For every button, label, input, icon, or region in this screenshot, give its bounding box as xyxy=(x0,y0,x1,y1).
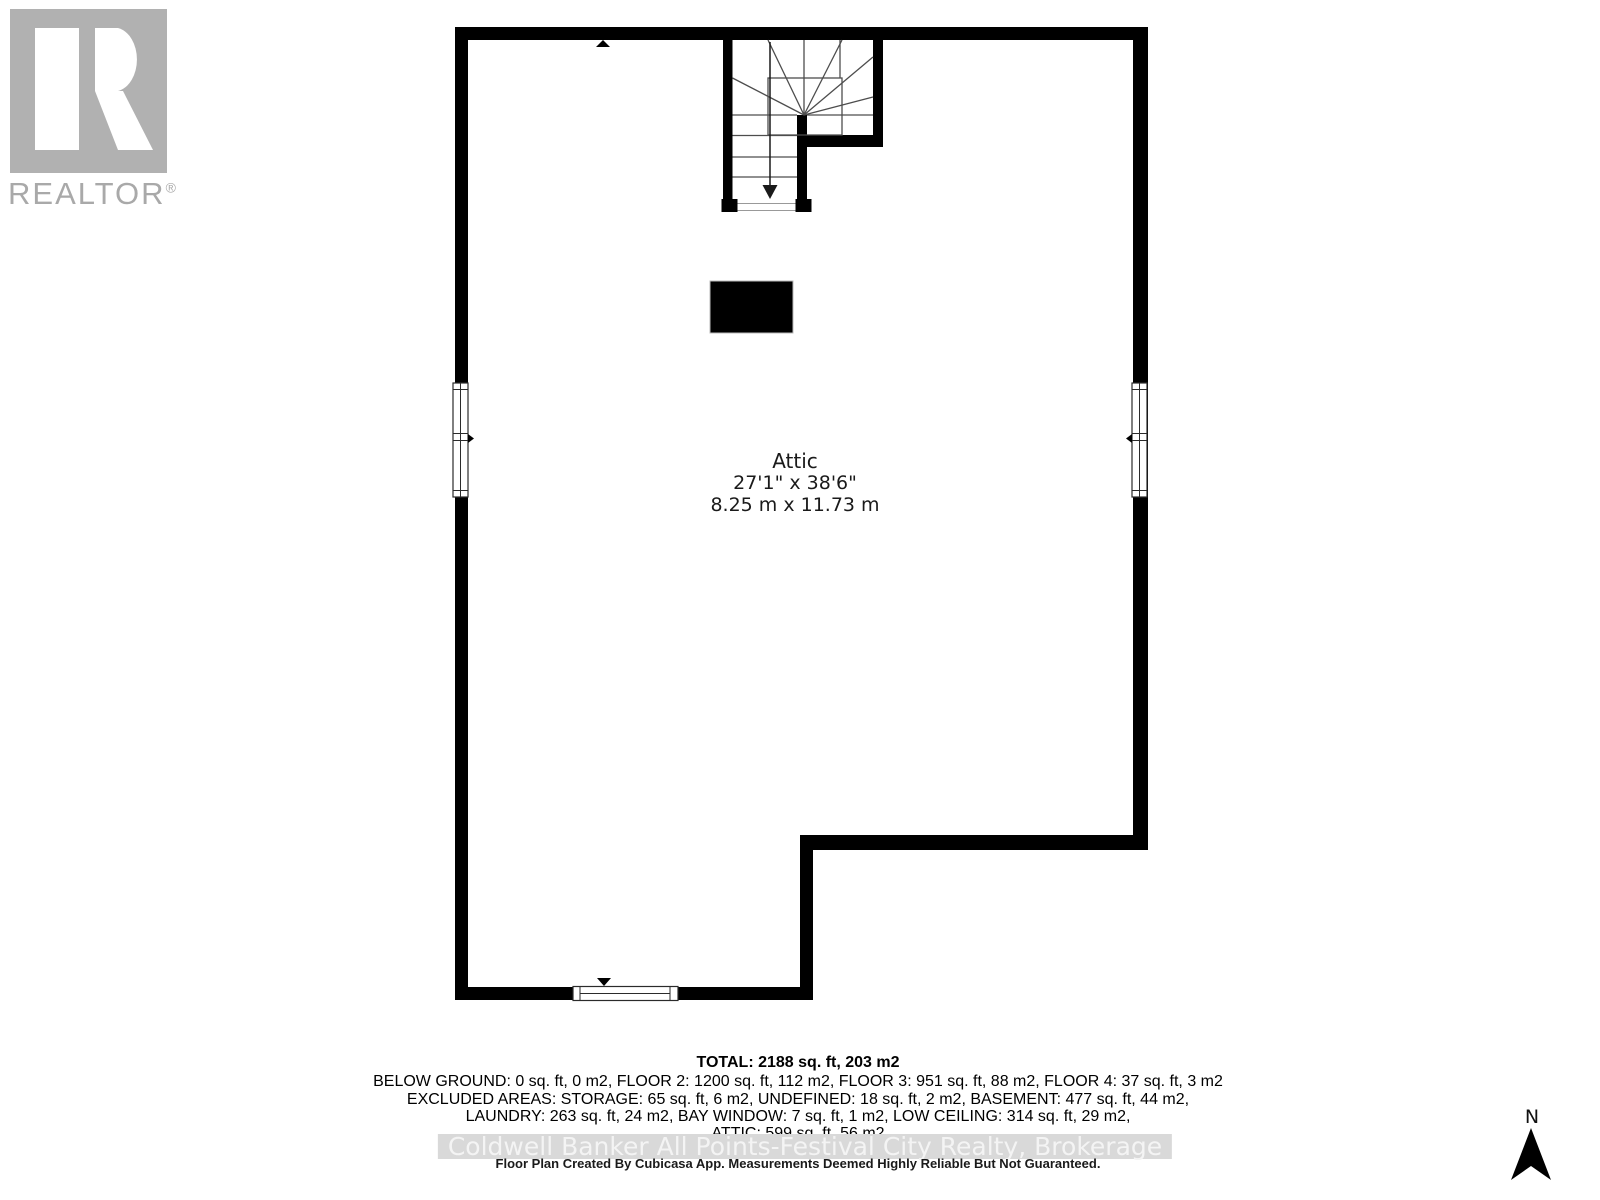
marker-triangle-bottom xyxy=(597,978,611,986)
floor-plan-drawing xyxy=(0,0,1600,1200)
stairs-down-arrow-icon xyxy=(763,42,778,199)
room-label: Attic 27'1" x 38'6" 8.25 m x 11.73 m xyxy=(435,450,1155,516)
total-area-line: TOTAL: 2188 sq. ft, 203 m2 xyxy=(0,1054,1596,1072)
marker-triangle-top xyxy=(596,40,610,47)
disclaimer-text: Floor Plan Created By Cubicasa App. Meas… xyxy=(0,1156,1596,1171)
floor-plan-page: REALTOR® xyxy=(0,0,1600,1200)
stair-threshold xyxy=(738,204,796,211)
room-size-metric: 8.25 m x 11.73 m xyxy=(435,494,1155,516)
room-name: Attic xyxy=(435,450,1155,472)
room-size-imperial: 27'1" x 38'6" xyxy=(435,472,1155,494)
summary-line-laundry: LAUNDRY: 263 sq. ft, 24 m2, BAY WINDOW: … xyxy=(0,1108,1596,1126)
stairwell-walls xyxy=(722,40,884,212)
compass-north-label: N xyxy=(1516,1106,1548,1128)
summary-line-floors: BELOW GROUND: 0 sq. ft, 0 m2, FLOOR 2: 1… xyxy=(0,1073,1596,1091)
summary-line-excluded: EXCLUDED AREAS: STORAGE: 65 sq. ft, 6 m2… xyxy=(0,1091,1596,1109)
bottom-window-icon xyxy=(573,987,678,1001)
chimney-block xyxy=(710,281,793,333)
